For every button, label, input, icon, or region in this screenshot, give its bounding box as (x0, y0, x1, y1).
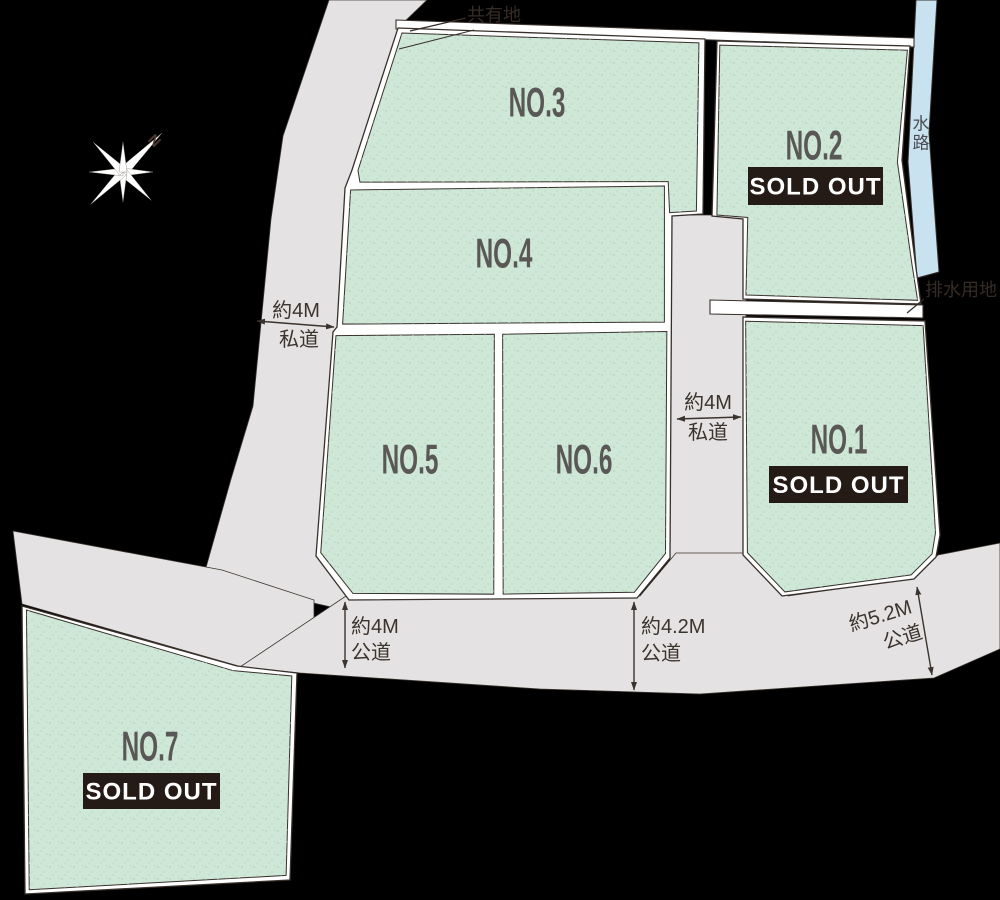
lot-no1-soldout-text: SOLD OUT (773, 472, 905, 499)
lot-no6-label: NO.6 (556, 437, 613, 483)
lot-no2-label: NO.2 (786, 123, 843, 169)
dimension-text: 私道 (688, 421, 728, 444)
lot-no5-label: NO.5 (382, 437, 439, 483)
site-plan: NO.1SOLD OUTNO.2SOLD OUTNO.3NO.4NO.5NO.6… (0, 0, 1000, 900)
dimension-text: 約4M (351, 615, 399, 638)
drainage-label: 排水用地 (925, 280, 997, 300)
lot-no4-label: NO.4 (476, 231, 533, 277)
lot-no7-soldout-text: SOLD OUT (86, 779, 218, 806)
waterway-label: 水路 (913, 115, 930, 153)
dimension-text: 私道 (279, 328, 319, 351)
site-plan-svg: NO.1SOLD OUTNO.2SOLD OUTNO.3NO.4NO.5NO.6… (0, 0, 1000, 900)
dimension-text: 約4M (684, 391, 732, 414)
lot-no1-label: NO.1 (811, 417, 868, 463)
lot-no7-label: NO.7 (122, 724, 179, 770)
waterway-label-char: 路 (913, 134, 930, 153)
lot-no3-label: NO.3 (509, 80, 566, 126)
dimension-text: 約4.2M (641, 615, 705, 638)
dimension-text: 約4M (272, 299, 320, 322)
dimension-text: 公道 (641, 642, 681, 665)
shared-land-label: 共有地 (467, 5, 521, 25)
dimension-text: 公道 (351, 641, 391, 664)
lot-no2-soldout-text: SOLD OUT (750, 174, 882, 201)
waterway-label-char: 水 (913, 115, 930, 134)
